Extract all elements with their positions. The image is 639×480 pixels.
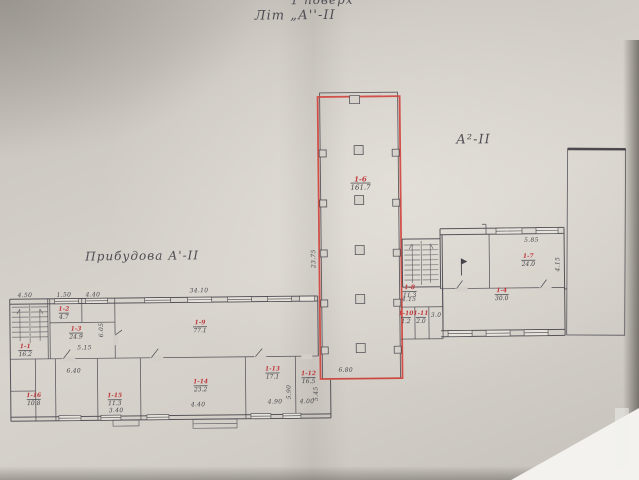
dim-text: 4.40: [191, 402, 206, 408]
dim-text: 6.05: [99, 323, 105, 338]
room-label: 1-116.2: [14, 344, 36, 358]
room-label: 1-1423.2: [190, 379, 212, 393]
dim-text: 5.90: [287, 385, 293, 400]
label-wing-a2: А²-ІІ: [456, 132, 491, 147]
hall-outline: [318, 92, 403, 379]
room-label: 1-430.0: [491, 288, 513, 302]
dim-text: 3.40: [109, 408, 124, 414]
dim-text: 23.75: [311, 249, 317, 268]
sheet-title-lit: Літ „А''-ІІ: [255, 8, 336, 24]
dim-text: 4.50: [18, 293, 33, 299]
dim-text: 4.90: [268, 399, 283, 405]
room-label-hall: 1-6161.7: [349, 175, 371, 191]
dim-text: 1.50: [57, 293, 72, 299]
staircase-left: [12, 305, 48, 343]
dim-text: 5.85: [524, 238, 539, 244]
room-label: 1-112.0: [414, 311, 428, 325]
door-leaf-mark: [461, 258, 467, 275]
dim-text: 5.45: [314, 386, 320, 401]
room-label: 1-977.1: [189, 320, 211, 334]
room-label: 1-324.9: [65, 326, 87, 340]
sheet-title-floor: 1 поверх: [291, 0, 354, 7]
room-label: 1-101.2: [399, 311, 413, 325]
room-label: 1-24.7: [53, 307, 75, 321]
staircase-right: [404, 241, 438, 285]
dim-text: 3.0: [431, 313, 442, 319]
label-annex: Прибудова А'-ІІ: [85, 248, 199, 263]
detached-block: [564, 149, 626, 335]
dim-text: 5.15: [77, 345, 92, 351]
dim-text: 6.80: [338, 368, 353, 374]
room-label: 1-1511.3: [104, 393, 126, 407]
room-label: 1-1216.5: [297, 371, 319, 385]
dim-text: 4.15: [402, 297, 417, 303]
floor-plan-drawing: 1 поверх Літ „А''-ІІ А²-ІІ Прибудова А'-…: [0, 0, 639, 480]
room-label: 1-1610.8: [23, 393, 45, 407]
dim-text: 4.40: [86, 292, 101, 298]
room-label: 1-724.0: [517, 254, 539, 268]
scanned-floor-plan-sheet: 1 поверх Літ „А''-ІІ А²-ІІ Прибудова А'-…: [0, 0, 639, 480]
dim-text: 6.40: [66, 368, 81, 374]
dim-text: 4.15: [555, 257, 561, 272]
floor-plan-linework: [0, 0, 639, 480]
dim-text: 34.10: [190, 288, 209, 294]
room-label: 1-1317.1: [261, 366, 283, 380]
